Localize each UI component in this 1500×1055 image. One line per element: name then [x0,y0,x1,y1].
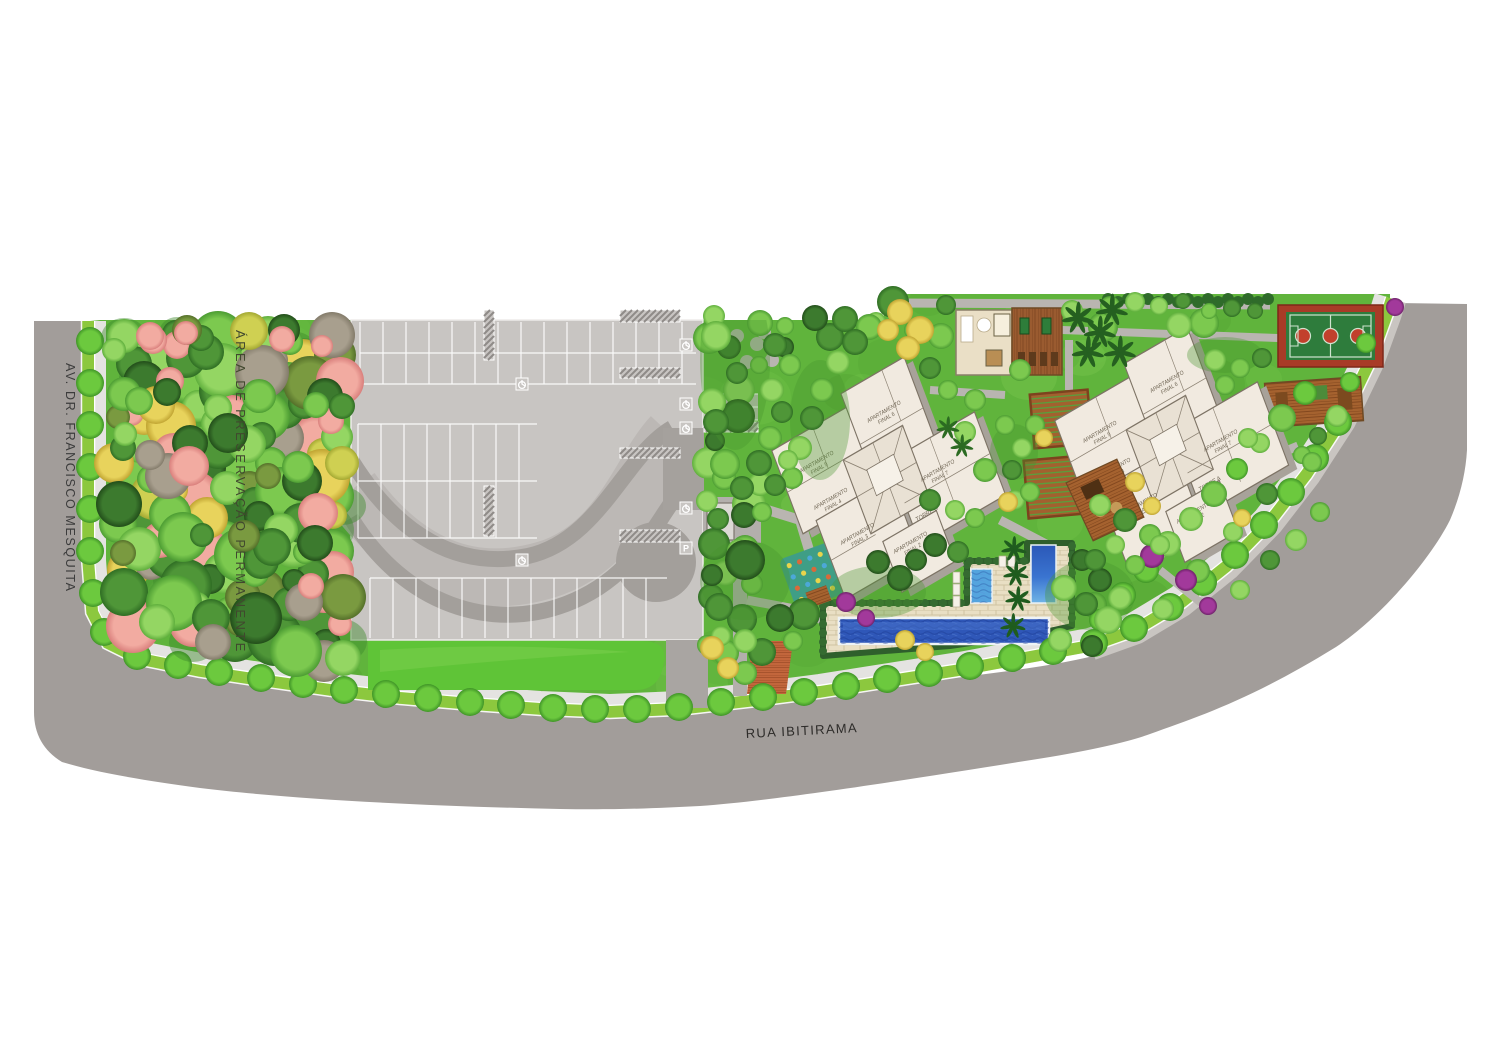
svg-text:P: P [683,544,689,554]
svg-text:AV. DR. FRANCISCO MESQUITA: AV. DR. FRANCISCO MESQUITA [63,363,77,593]
svg-text:ÁREA DE PRESERVAÇÃO PERMANENTE: ÁREA DE PRESERVAÇÃO PERMANENTE [233,330,248,654]
